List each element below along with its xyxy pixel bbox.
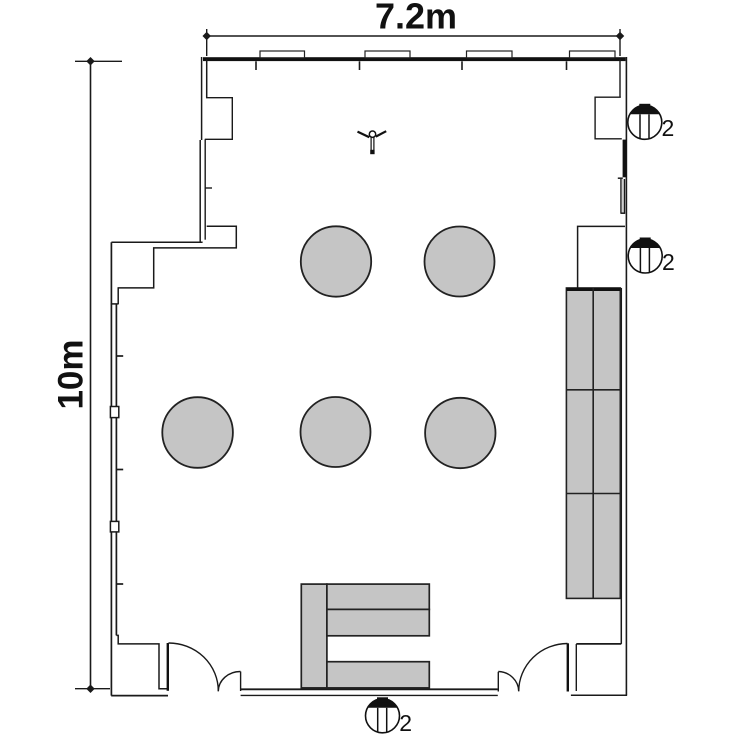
svg-text:2: 2	[399, 710, 412, 736]
svg-text:10m: 10m	[51, 339, 90, 409]
svg-text:2: 2	[662, 115, 675, 141]
svg-text:2: 2	[662, 249, 675, 275]
svg-text:7.2m: 7.2m	[375, 0, 457, 37]
